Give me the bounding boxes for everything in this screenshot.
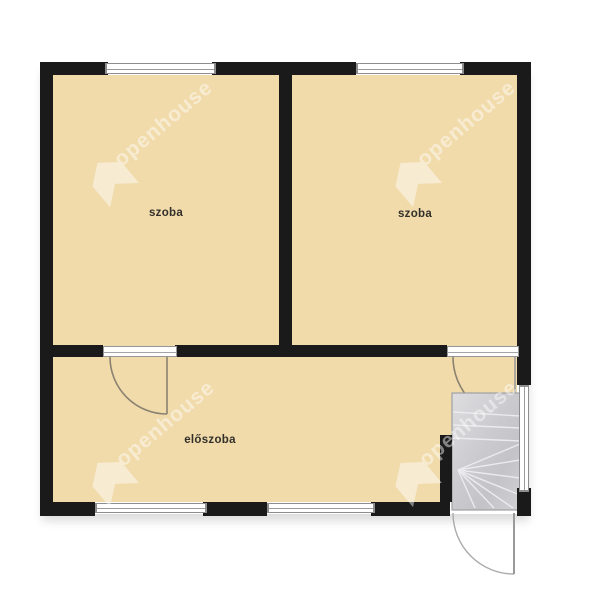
- wall-bottom-segment-3: [371, 502, 450, 516]
- window-top-right: [356, 63, 464, 74]
- entry-door: [453, 513, 514, 574]
- room-label-szoba-right: szoba: [375, 208, 455, 220]
- window-bottom-left: [95, 503, 207, 513]
- floor-plan: szoba szoba előszoba openhouse openhouse…: [0, 0, 600, 598]
- wall-bottom-segment-1: [40, 502, 95, 516]
- room-label-eloszoba: előszoba: [160, 434, 260, 446]
- staircase: [452, 393, 521, 510]
- window-right-stair: [519, 385, 529, 492]
- wall-room-divider: [279, 75, 292, 345]
- wall-top-segment-2: [212, 62, 356, 75]
- wall-right-segment-1: [517, 62, 531, 385]
- wall-top-segment-1: [40, 62, 108, 75]
- door-frame-right: [447, 346, 519, 357]
- wall-bottom-segment-2: [203, 502, 267, 516]
- wall-stair-side: [440, 435, 452, 502]
- room-label-szoba-left: szoba: [126, 207, 206, 219]
- window-bottom-middle: [267, 503, 375, 513]
- wall-hall-segment-2: [175, 345, 447, 357]
- window-top-left: [105, 63, 216, 74]
- door-frame-left: [103, 346, 177, 357]
- wall-right-segment-2: [517, 488, 531, 516]
- wall-left: [40, 62, 53, 516]
- door-left-room: [110, 357, 167, 414]
- wall-hall-segment-1: [53, 345, 103, 357]
